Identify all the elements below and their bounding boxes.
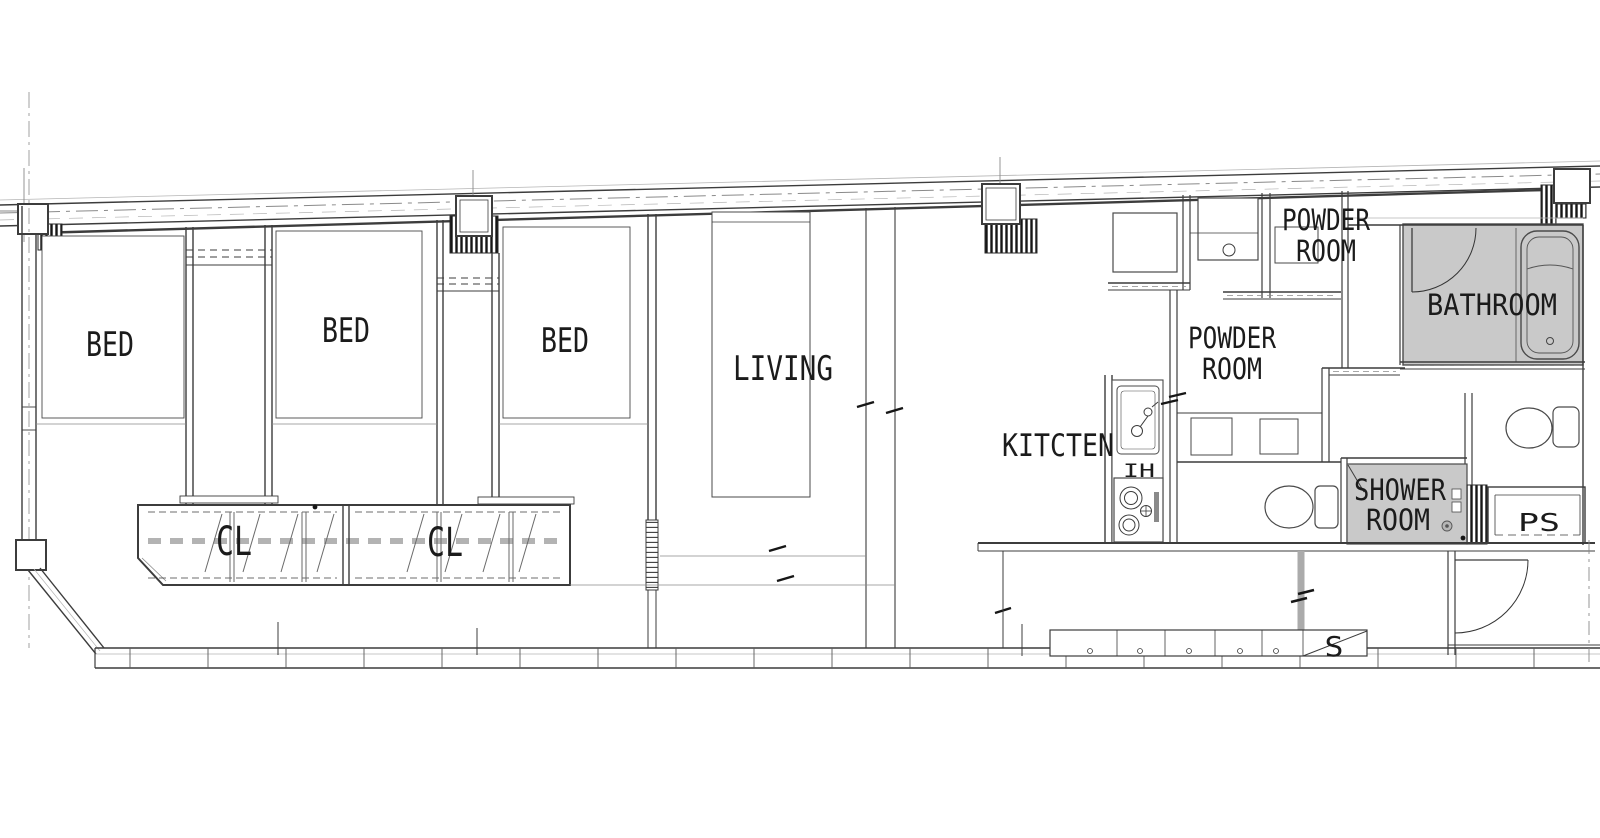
toilet-room-2 xyxy=(1465,393,1579,487)
floor-plan-page: BED BED BED LIVING CL CL KITCTEN IH POWD… xyxy=(0,0,1600,838)
entry-cabinet xyxy=(1050,630,1367,656)
label-living: LIVING xyxy=(733,349,833,389)
refrigerator xyxy=(1113,213,1177,272)
label-ih-cooktop: IH xyxy=(1123,460,1155,482)
closet-shelf xyxy=(180,496,278,503)
wall-hatch-block xyxy=(1556,204,1586,218)
floor-plan-canvas: BED BED BED LIVING CL CL KITCTEN IH POWD… xyxy=(0,0,1600,838)
label-bed-3: BED xyxy=(541,321,589,361)
closet-shelf xyxy=(478,497,574,504)
label-bathroom: BATHROOM xyxy=(1427,288,1557,322)
closets xyxy=(138,496,574,585)
label-storage: S xyxy=(1325,630,1344,663)
washer-pan xyxy=(1198,198,1258,260)
label-bed-2: BED xyxy=(322,311,370,351)
bottom-window-band xyxy=(95,622,1600,668)
label-powder-room-2-line2: ROOM xyxy=(1202,352,1262,386)
label-closet-2: CL xyxy=(427,520,463,566)
closet-outline xyxy=(138,505,570,585)
label-powder-room-2-line1: POWDER xyxy=(1188,321,1276,355)
label-shower-room-line1: SHOWER xyxy=(1354,473,1446,507)
label-bed-1: BED xyxy=(86,325,134,365)
vanity-basin xyxy=(1260,419,1298,454)
vanity-basin xyxy=(1191,418,1232,455)
entry-door xyxy=(1448,551,1600,655)
label-powder-room-1-line2: ROOM xyxy=(1296,234,1356,268)
label-powder-room-1-line1: POWDER xyxy=(1282,203,1370,237)
label-shower-room-line2: ROOM xyxy=(1366,503,1430,537)
toilet-2 xyxy=(1506,407,1579,448)
toilet-1 xyxy=(1265,486,1338,528)
label-kitchen: KITCTEN xyxy=(1002,428,1114,464)
stove-grill xyxy=(1154,492,1159,522)
living-area xyxy=(570,207,1011,648)
shower-drain-icon xyxy=(1442,521,1452,531)
structural-column xyxy=(16,540,46,570)
wall-ladder-hatch xyxy=(646,520,658,590)
label-closet-1: CL xyxy=(216,519,252,565)
label-pipe-space: PS xyxy=(1518,508,1560,537)
diagonal-wall xyxy=(28,570,96,654)
wall-hatch-block xyxy=(1467,485,1487,544)
